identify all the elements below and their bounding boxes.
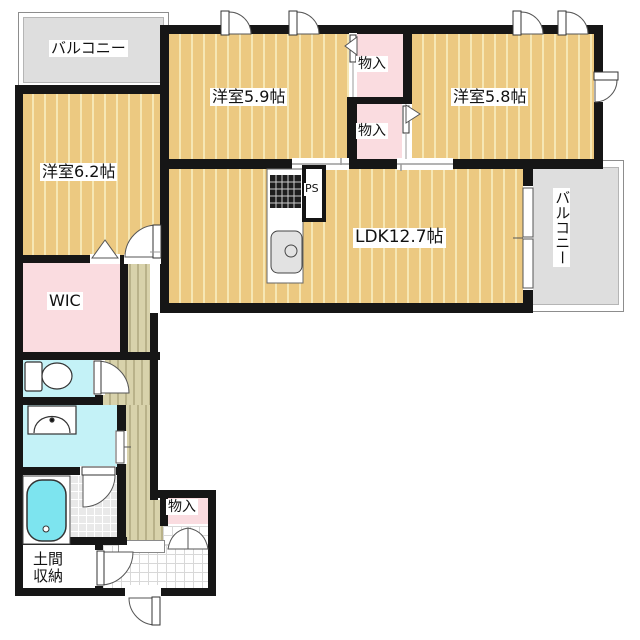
door-entrance-icon [129, 597, 160, 625]
hallway-floor-toilet-nook [103, 360, 150, 405]
bedroom62-label: 洋室6.2帖 [40, 163, 117, 181]
wall-doma-right [95, 545, 103, 590]
sliding-door-bedroom59 [292, 158, 349, 165]
wall-bathroom-bottom [15, 537, 127, 545]
closet-entry-label: 物入 [166, 499, 198, 515]
balcony-right-label: バルコニー [553, 188, 570, 267]
bathroom-floor [22, 475, 118, 537]
washroom-floor [22, 405, 117, 467]
wall-toilet-bottom [15, 397, 103, 405]
wall-bedroom58-ldk [349, 159, 603, 169]
floor-plan: バルコニー 洋室5.9帖 洋室5.8帖 洋室6.2帖 LDK12.7帖 物入 物… [0, 0, 640, 640]
toilet-room-floor [22, 360, 95, 397]
balcony-right-deck [529, 167, 619, 305]
wall-ldk-bottom [160, 303, 533, 313]
wall-closet-entry-top [150, 490, 216, 498]
wic-label: WIC [47, 292, 83, 310]
wall-left-main [160, 25, 169, 313]
doma-storage-label: 土間 収納 [31, 551, 65, 586]
bedroom58-label: 洋室5.8帖 [451, 88, 528, 106]
wall-top [160, 25, 603, 34]
wall-washroom-bottom [15, 467, 123, 475]
wall-closet1-right [403, 32, 412, 104]
wall-right-bedroom58 [594, 25, 603, 169]
wall-hall-right-exterior [150, 313, 158, 500]
wall-closet-divider [347, 97, 411, 104]
wall-bottom-exterior [15, 588, 216, 596]
bedroom59-label: 洋室5.9帖 [210, 88, 287, 106]
wall-right-lower-exterior [208, 490, 216, 596]
wall-bedroom59-ldk [160, 159, 292, 169]
room-ldk-floor [169, 169, 523, 303]
closet2-label: 物入 [356, 123, 388, 139]
wall-washroom-right [117, 405, 126, 545]
wall-left-exterior [15, 88, 23, 596]
wall-bedroom62-bottom [15, 255, 161, 263]
entrance-tile-floor-right [163, 526, 208, 545]
balcony-right [528, 160, 624, 312]
wall-balcony-top [15, 85, 165, 94]
balcony-top-label: バルコニー [49, 40, 128, 57]
wall-ldk-right [523, 169, 533, 313]
wall-wic-right [120, 255, 128, 360]
pipe-shaft-label: PS [304, 183, 320, 196]
ldk-label: LDK12.7帖 [353, 228, 446, 248]
doma-line1: 土間 [33, 551, 63, 568]
doma-line2: 収納 [33, 568, 63, 585]
wall-wic-bottom [15, 352, 160, 360]
closet1-label: 物入 [356, 56, 388, 72]
